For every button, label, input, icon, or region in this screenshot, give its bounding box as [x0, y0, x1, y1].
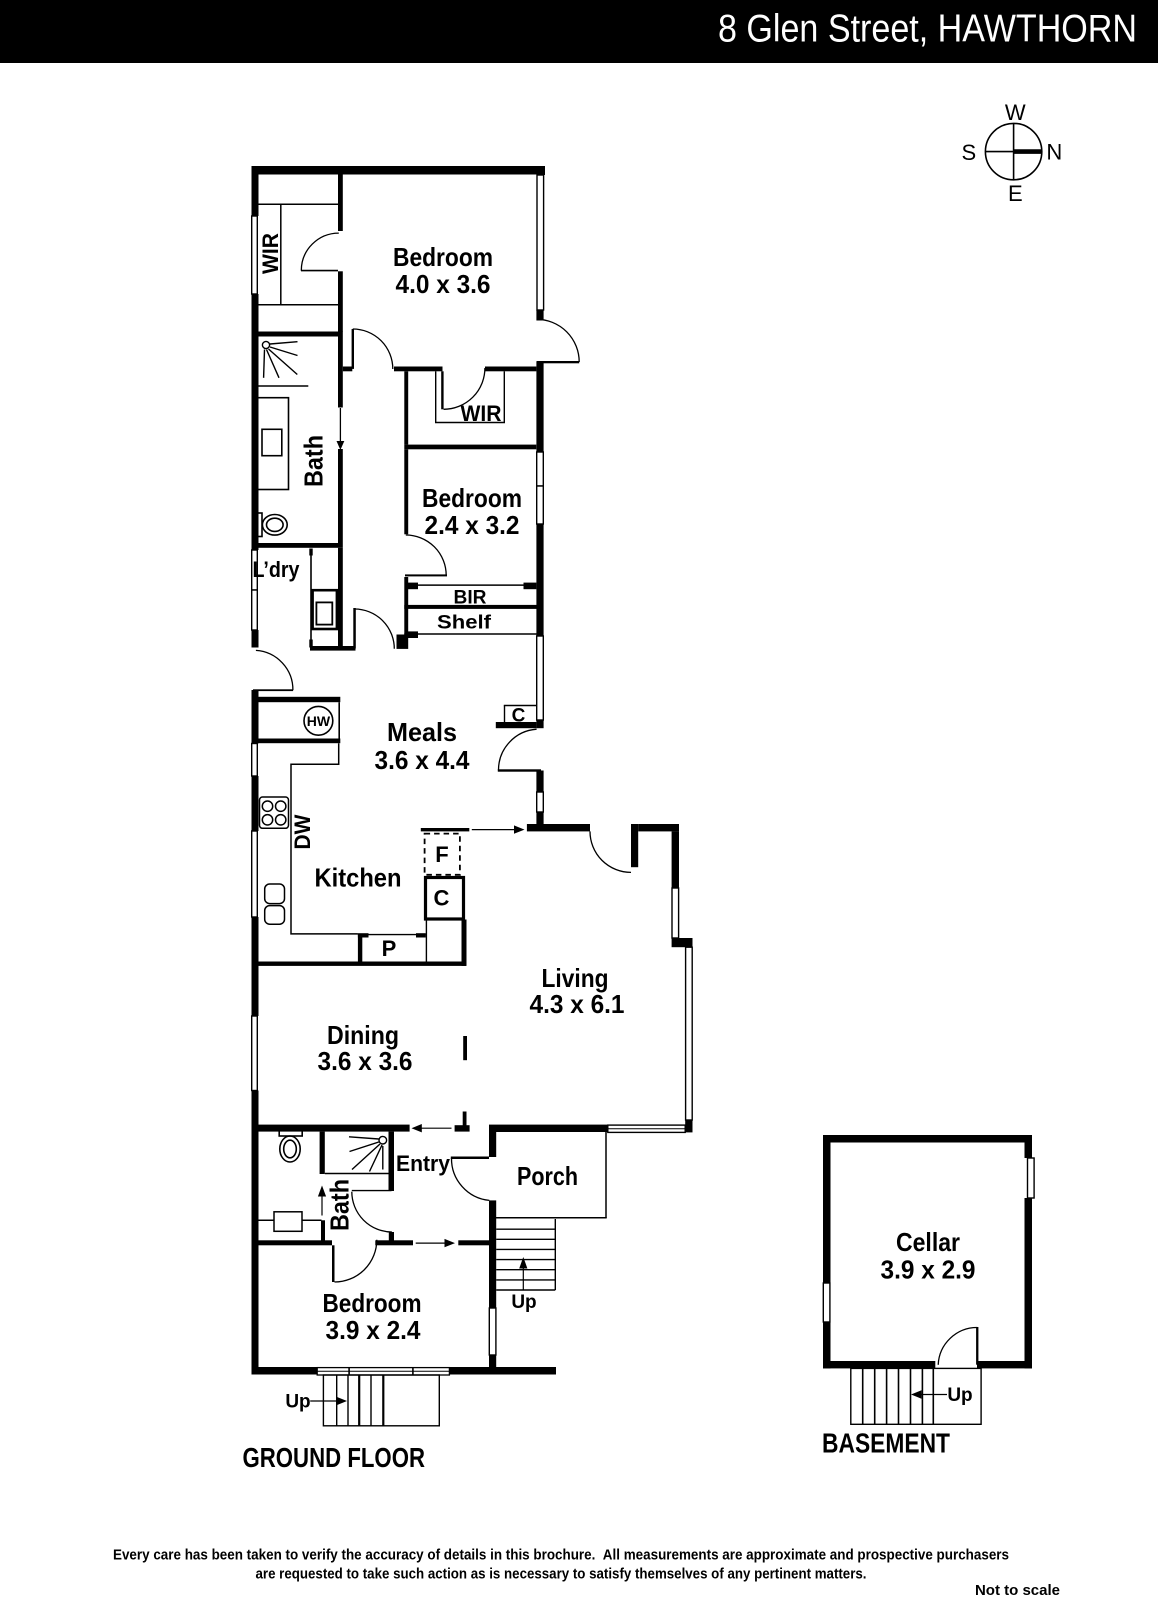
- svg-text:3.6 x 4.4: 3.6 x 4.4: [375, 745, 470, 775]
- svg-text:Up: Up: [947, 1385, 972, 1406]
- svg-text:GROUND FLOOR: GROUND FLOOR: [243, 1442, 426, 1473]
- svg-text:are requested to take such act: are requested to take such action as is …: [256, 1567, 867, 1583]
- svg-text:L’dry: L’dry: [253, 557, 301, 582]
- svg-text:Not to scale: Not to scale: [975, 1582, 1060, 1599]
- svg-text:Up: Up: [511, 1292, 536, 1313]
- svg-text:P: P: [382, 936, 397, 961]
- svg-text:Bath: Bath: [325, 1179, 355, 1231]
- svg-text:Porch: Porch: [517, 1161, 578, 1191]
- svg-text:Bedroom: Bedroom: [393, 242, 493, 272]
- svg-text:W: W: [1005, 100, 1026, 125]
- svg-text:8 Glen Street, HAWTHORN: 8 Glen Street, HAWTHORN: [718, 8, 1137, 51]
- svg-text:E: E: [1008, 181, 1023, 206]
- svg-text:4.3 x 6.1: 4.3 x 6.1: [530, 989, 625, 1019]
- svg-text:F: F: [435, 842, 448, 867]
- svg-text:Kitchen: Kitchen: [315, 863, 402, 893]
- svg-text:DW: DW: [290, 814, 315, 849]
- svg-text:3.6 x 3.6: 3.6 x 3.6: [318, 1046, 413, 1076]
- svg-text:2.4 x 3.2: 2.4 x 3.2: [425, 510, 520, 540]
- svg-text:3.9 x 2.9: 3.9 x 2.9: [881, 1255, 976, 1285]
- svg-text:Cellar: Cellar: [896, 1227, 960, 1257]
- svg-text:Bedroom: Bedroom: [422, 483, 522, 513]
- svg-text:Up: Up: [285, 1392, 310, 1413]
- svg-text:Entry: Entry: [396, 1151, 451, 1176]
- svg-text:S: S: [962, 140, 977, 165]
- svg-text:Bath: Bath: [299, 435, 329, 487]
- svg-text:WIR: WIR: [258, 233, 283, 274]
- svg-text:HW: HW: [307, 713, 331, 729]
- svg-text:3.9 x 2.4: 3.9 x 2.4: [326, 1315, 421, 1345]
- svg-text:Every care has been taken to v: Every care has been taken to verify the …: [113, 1548, 1009, 1564]
- svg-text:Shelf: Shelf: [437, 613, 492, 634]
- svg-text:4.0 x 3.6: 4.0 x 3.6: [396, 269, 491, 299]
- svg-text:BASEMENT: BASEMENT: [822, 1428, 950, 1459]
- svg-text:C: C: [434, 886, 450, 911]
- svg-text:N: N: [1046, 140, 1062, 165]
- svg-text:Meals: Meals: [387, 717, 457, 747]
- svg-text:WIR: WIR: [461, 401, 502, 426]
- svg-text:Bedroom: Bedroom: [323, 1288, 422, 1318]
